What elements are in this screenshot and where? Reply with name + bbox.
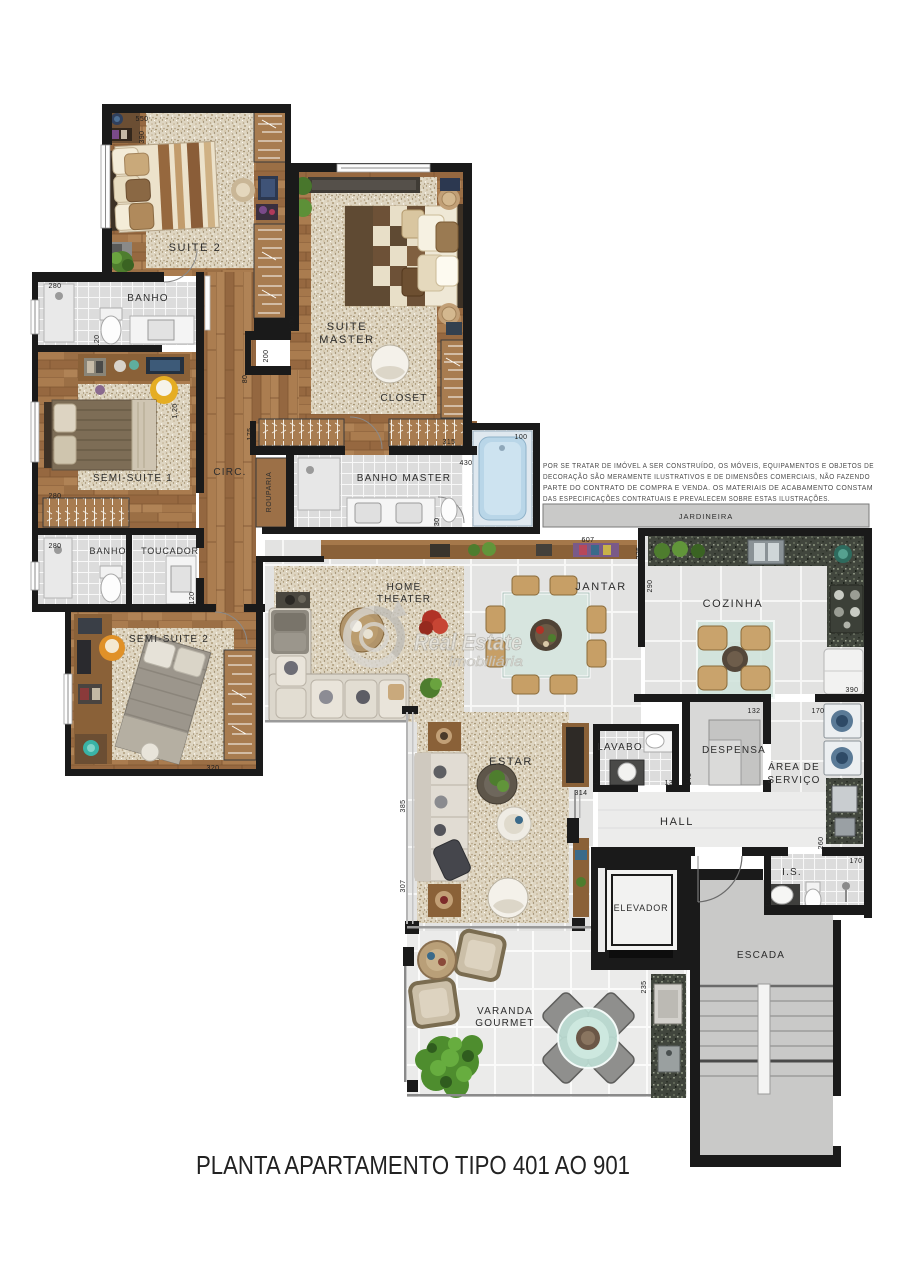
svg-text:170: 170 <box>850 858 863 865</box>
svg-text:COZINHA: COZINHA <box>703 598 764 610</box>
svg-text:120: 120 <box>94 335 101 348</box>
svg-text:314: 314 <box>575 790 588 797</box>
svg-text:607: 607 <box>582 537 595 544</box>
svg-text:imobiliária: imobiliária <box>449 653 523 669</box>
svg-text:ELEVADOR: ELEVADOR <box>614 903 669 913</box>
svg-text:335: 335 <box>636 547 643 560</box>
svg-text:JANTAR: JANTAR <box>575 581 627 593</box>
svg-text:PLANTA APARTAMENTO TIPO 401 AO: PLANTA APARTAMENTO TIPO 401 AO 901 <box>196 1150 630 1180</box>
svg-text:550: 550 <box>136 116 149 123</box>
svg-text:I.S.: I.S. <box>782 867 802 878</box>
svg-text:BANHO MASTER: BANHO MASTER <box>357 473 451 484</box>
svg-text:ROUPARIA: ROUPARIA <box>266 472 273 513</box>
svg-text:DESPENSA: DESPENSA <box>702 745 766 756</box>
svg-text:BANHO: BANHO <box>127 293 169 304</box>
svg-text:1,20: 1,20 <box>172 403 179 418</box>
svg-text:ESCADA: ESCADA <box>737 950 785 961</box>
svg-text:PARTE DO CONTRATO DE COMPRA E: PARTE DO CONTRATO DE COMPRA E VENDA. OS … <box>543 483 873 492</box>
svg-text:100: 100 <box>593 773 600 786</box>
svg-text:100: 100 <box>765 895 772 908</box>
svg-text:SERVIÇO: SERVIÇO <box>767 775 820 786</box>
svg-text:145: 145 <box>686 773 693 786</box>
svg-text:170: 170 <box>812 708 825 715</box>
svg-text:315: 315 <box>443 439 456 446</box>
svg-text:CIRC.: CIRC. <box>213 467 246 478</box>
svg-text:SUITE: SUITE <box>327 321 367 333</box>
svg-text:300: 300 <box>289 316 296 329</box>
svg-text:SEMI-SUITE 2: SEMI-SUITE 2 <box>129 634 209 645</box>
svg-text:320: 320 <box>207 765 220 772</box>
svg-text:200: 200 <box>263 350 270 363</box>
svg-text:280: 280 <box>49 493 62 500</box>
svg-text:120: 120 <box>189 592 196 605</box>
svg-text:BANHO: BANHO <box>89 546 126 556</box>
svg-text:ESTAR: ESTAR <box>489 756 533 768</box>
svg-text:430: 430 <box>460 460 473 467</box>
svg-text:LAVABO: LAVABO <box>597 742 643 753</box>
svg-text:390: 390 <box>846 687 859 694</box>
svg-text:175: 175 <box>247 428 254 441</box>
svg-text:HALL: HALL <box>660 816 694 828</box>
svg-text:260: 260 <box>818 837 825 850</box>
svg-text:TOUCADOR: TOUCADOR <box>141 546 199 556</box>
svg-text:DECORAÇÃO SÃO MERAMENTE ILUSTR: DECORAÇÃO SÃO MERAMENTE ILUSTRATIVOS E D… <box>543 472 870 481</box>
svg-text:JARDINEIRA: JARDINEIRA <box>679 512 734 521</box>
svg-text:CLOSET: CLOSET <box>380 393 427 404</box>
svg-text:ÁREA DE: ÁREA DE <box>768 760 820 773</box>
svg-text:POR SE TRATAR DE IMÓVEL A SER: POR SE TRATAR DE IMÓVEL A SER CONSTRUÍDO… <box>543 461 874 470</box>
svg-text:130: 130 <box>665 780 678 787</box>
svg-text:235: 235 <box>641 981 648 994</box>
svg-text:DAS ESPECIFICAÇÕES CONTRATUAIS: DAS ESPECIFICAÇÕES CONTRATUAIS E PREVALE… <box>543 494 830 503</box>
svg-text:SUITE 2: SUITE 2 <box>169 242 222 254</box>
svg-text:GOURMET: GOURMET <box>475 1018 535 1029</box>
svg-text:390: 390 <box>139 131 146 144</box>
svg-text:HOME: HOME <box>387 582 422 593</box>
svg-text:THEATER: THEATER <box>377 594 431 605</box>
svg-text:280: 280 <box>49 543 62 550</box>
svg-text:290: 290 <box>647 580 654 593</box>
svg-text:130: 130 <box>434 518 441 531</box>
svg-text:307: 307 <box>400 880 407 893</box>
svg-text:100: 100 <box>515 434 528 441</box>
svg-text:80: 80 <box>242 375 249 384</box>
svg-text:MASTER: MASTER <box>319 334 374 346</box>
svg-text:SEMI-SUITE 1: SEMI-SUITE 1 <box>93 473 173 484</box>
svg-text:385: 385 <box>400 800 407 813</box>
svg-text:132: 132 <box>748 708 761 715</box>
svg-text:280: 280 <box>49 283 62 290</box>
svg-text:VARANDA: VARANDA <box>477 1006 533 1017</box>
svg-text:Real Estate: Real Estate <box>414 629 522 655</box>
